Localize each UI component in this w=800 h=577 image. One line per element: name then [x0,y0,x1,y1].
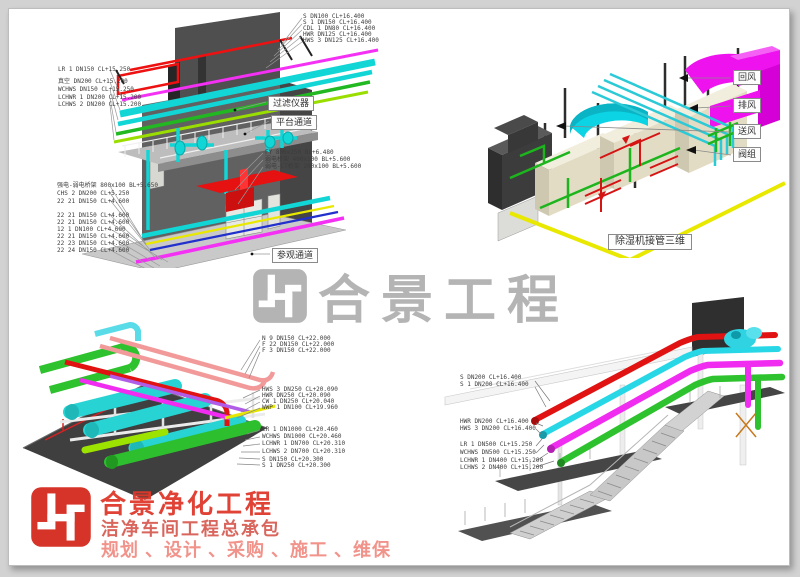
pipe-label: 22 21 DN150 CL+4.600 [57,199,129,205]
pipe-label: LR 1 DN500 CL+15.250 [460,442,532,448]
view-pipe-rack: N 9 DN150 CL+22.000 F 22 DN150 CL+22.000… [15,300,375,515]
pipe-label: WCHWS DN500 CL+15.250 [460,450,536,456]
dehumidifier-illustration [480,28,795,258]
pipe-label: F 3 DN150 CL+22.000 [262,348,331,354]
pipe-label: HWS 3 DN125 CL+16.400 [303,38,379,44]
pipe-label: HWS 3 DN200 CL+16.400 [460,426,536,432]
callout-valve-group: 阀组 [733,147,761,162]
pipe-label: S 1 DN200 CL+16.400 [460,382,529,388]
view-dehumidifier-piping: 回风 排风 送风 阀组 除湿机接管三维 [480,28,795,258]
view-stair-piping: S DN200 CL+16.400 S 1 DN200 CL+16.400 HW… [440,295,795,550]
pipe-label: 22 24 DN150 CL+4.600 [57,248,129,254]
callout-visit-passage: 参观通道 [272,248,318,263]
pipe-label: WCHWS DN150 CL+15.250 [58,87,134,93]
pipe-label: LCHWS 2 DN400 CL+15.200 [460,465,543,471]
callout-return-air: 回风 [733,70,761,85]
view-building-piping: S DN100 CL+16.400 S 1 DN150 CL+16.400 CD… [30,10,385,268]
pipe-label: LCHWS 2 DN700 CL+20.310 [262,449,345,455]
pipe-label: LR 1 DN150 CL+15.250 [58,67,130,73]
pipe-label: 真空 DN200 CL+15.200 [58,79,128,85]
callout-platform-passage: 平台通道 [271,115,317,130]
pipe-label: LCHWR 1 DN700 CL+20.310 [262,441,345,447]
pipe-label: WWP 1 DN100 CL+19.960 [262,405,338,411]
pipe-label: 弱电-CT桥架 200x100 BL+5.600 [265,164,361,170]
page-canvas: 合景工程 [0,0,800,577]
callout-exhaust-air: 排风 [733,98,761,113]
pipe-label: CHS 2 DN200 CL+5.250 [57,191,129,197]
pipe-label: LCHWS 2 DN200 CL+15.200 [58,102,141,108]
pipe-label: S 1 DN250 CL+20.300 [262,463,331,469]
pipe-label: 强电-弱电桥架 800x100 BL+5.650 [57,183,158,189]
callout-filter-instrument: 过滤仪器 [268,96,314,111]
callout-supply-air: 送风 [733,124,761,139]
view-caption: 除湿机接管三维 [608,234,692,250]
